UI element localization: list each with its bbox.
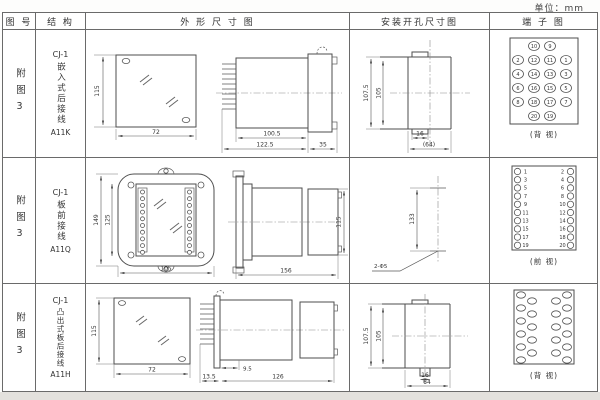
svg-text:105: 105 — [376, 87, 383, 99]
hole-note: 2-Φ5 — [374, 264, 388, 270]
header-install-dims: 安装开孔尺寸图 — [350, 13, 490, 30]
svg-text:16: 16 — [421, 372, 429, 379]
svg-text:5: 5 — [564, 86, 567, 92]
structure-row3: CJ-1 凸出式板后接线 A11H — [36, 284, 86, 391]
terminal-diagram-row1: 1092121114141336161558181772019 (背 视) — [490, 30, 597, 158]
install-drawing-row3-svg: 107.5 105 16 64 — [350, 284, 489, 390]
svg-text:3: 3 — [564, 72, 567, 78]
terminal-view-label-row1: (背 视) — [530, 129, 558, 139]
spec-table: 图 号 结 构 外 形 尺 寸 图 安装开孔尺寸图 端 子 图 附图3 CJ-1… — [2, 12, 598, 392]
svg-text:6: 6 — [561, 186, 564, 192]
svg-text:3: 3 — [524, 178, 527, 184]
svg-text:16: 16 — [416, 131, 424, 138]
mounting-hook — [216, 291, 224, 296]
svg-text:10: 10 — [559, 202, 565, 208]
svg-text:72: 72 — [152, 129, 160, 136]
structure-code-row1: A11K — [51, 128, 71, 137]
structure-code-row2: A11Q — [50, 245, 71, 254]
structure-model-row3: CJ-1 — [53, 296, 69, 305]
svg-text:17: 17 — [547, 100, 553, 106]
svg-text:149: 149 — [93, 214, 100, 226]
terminal-2-pins: 1234567891011121314151617181920 — [514, 168, 573, 249]
header-terminal: 端 子 图 — [490, 13, 597, 30]
svg-text:13.5: 13.5 — [202, 374, 216, 381]
svg-text:107.5: 107.5 — [363, 327, 370, 344]
svg-text:7: 7 — [524, 194, 527, 200]
svg-text:105: 105 — [376, 330, 383, 342]
svg-text:7: 7 — [564, 100, 567, 106]
structure-row1: CJ-1 嵌入式后接线 A11K — [36, 30, 86, 158]
svg-text:115: 115 — [336, 216, 343, 228]
outline-drawing-row1-svg: 115 72 100.5 122.5 35 — [86, 30, 349, 157]
svg-text:5: 5 — [524, 186, 527, 192]
svg-text:4: 4 — [516, 72, 519, 78]
svg-text:11: 11 — [522, 210, 528, 216]
svg-text:100.5: 100.5 — [263, 131, 280, 138]
mounting-hook — [317, 47, 327, 54]
svg-text:4: 4 — [561, 178, 564, 184]
svg-text:20: 20 — [559, 243, 565, 249]
rear-pins — [222, 64, 236, 109]
hatch-marks — [154, 199, 182, 233]
hatch-marks — [136, 316, 169, 345]
terminal-view-label-row2: (前 视) — [530, 256, 558, 266]
outline-diagram-row2: 149 125 105 115 156 — [86, 158, 350, 284]
terminal-diagram-row2: 1234567891011121314151617181920 (前 视) — [490, 158, 597, 284]
install-diagram-row2: 133 2-Φ5 — [350, 158, 490, 284]
terminal-drawing-row2-svg: 1234567891011121314151617181920 (前 视) — [490, 158, 596, 283]
figure-no-row2: 附图3 — [3, 158, 36, 284]
svg-text:(64): (64) — [423, 142, 435, 149]
svg-text:18: 18 — [559, 235, 565, 241]
structure-code-row3: A11H — [50, 370, 70, 379]
svg-text:14: 14 — [559, 219, 565, 225]
svg-text:1: 1 — [524, 169, 527, 175]
svg-text:14: 14 — [531, 72, 537, 78]
svg-text:6: 6 — [516, 86, 519, 92]
svg-text:35: 35 — [319, 142, 327, 149]
terminal-3-pins — [517, 292, 572, 363]
svg-text:15: 15 — [522, 227, 528, 233]
terminal-drawing-row1-svg: 1092121114141336161558181772019 (背 视) — [490, 30, 596, 157]
install-diagram-row1: 107.5 105 16 (64) — [350, 30, 490, 158]
svg-text:115: 115 — [91, 325, 98, 337]
svg-text:19: 19 — [522, 243, 528, 249]
terminal-diagram-row3: (背 视) — [490, 284, 597, 391]
svg-text:18: 18 — [531, 100, 537, 106]
svg-text:13: 13 — [522, 219, 528, 225]
structure-desc-row1: 嵌入式后接线 — [55, 62, 67, 125]
svg-text:72: 72 — [148, 367, 156, 374]
svg-text:19: 19 — [547, 114, 553, 120]
header-figure-no: 图 号 — [3, 13, 36, 30]
svg-text:9: 9 — [524, 202, 527, 208]
outline-drawing-row2-svg: 149 125 105 115 156 — [86, 158, 349, 283]
svg-text:156: 156 — [280, 268, 292, 275]
svg-text:15: 15 — [547, 86, 553, 92]
svg-text:12: 12 — [531, 58, 537, 64]
install-diagram-row3: 107.5 105 16 64 — [350, 284, 490, 391]
terminal-1-pins: 1092121114141336161558181772019 — [513, 42, 572, 121]
svg-text:9: 9 — [548, 44, 551, 50]
svg-text:20: 20 — [531, 114, 537, 120]
rear-pins — [200, 304, 214, 344]
svg-text:11: 11 — [547, 58, 553, 64]
install-drawing-row2-svg: 133 2-Φ5 — [350, 158, 489, 283]
svg-text:10: 10 — [531, 44, 537, 50]
svg-text:64: 64 — [423, 379, 431, 386]
outline-drawing-row3-svg: 115 72 9.5 13.5 126 — [86, 284, 349, 390]
structure-desc-row3: 凸出式板后接线 — [55, 308, 66, 368]
header-structure: 结 构 — [36, 13, 86, 30]
outline-diagram-row3: 115 72 9.5 13.5 126 — [86, 284, 350, 391]
structure-desc-row2: 板前接线 — [55, 200, 67, 242]
svg-text:126: 126 — [272, 374, 284, 381]
svg-text:107.5: 107.5 — [363, 84, 370, 101]
terminal-view-label-row3: (背 视) — [530, 370, 558, 380]
install-drawing-row1-svg: 107.5 105 16 (64) — [350, 30, 489, 157]
outline-2-strips — [141, 190, 192, 254]
terminal-drawing-row3-svg: (背 视) — [490, 284, 596, 390]
svg-text:12: 12 — [559, 210, 565, 216]
structure-model-row1: CJ-1 — [53, 50, 69, 59]
svg-text:9.5: 9.5 — [243, 367, 252, 373]
svg-text:8: 8 — [516, 100, 519, 106]
svg-text:105: 105 — [160, 266, 172, 273]
svg-text:16: 16 — [559, 227, 565, 233]
svg-text:133: 133 — [409, 213, 416, 225]
svg-text:2: 2 — [561, 169, 564, 175]
svg-text:8: 8 — [561, 194, 564, 200]
structure-model-row2: CJ-1 — [53, 188, 69, 197]
svg-text:17: 17 — [522, 235, 528, 241]
structure-row2: CJ-1 板前接线 A11Q — [36, 158, 86, 284]
svg-text:1: 1 — [564, 58, 567, 64]
page-edge-shade — [0, 392, 600, 400]
header-outline-dims: 外 形 尺 寸 图 — [86, 13, 350, 30]
svg-text:125: 125 — [105, 214, 112, 226]
outline-diagram-row1: 115 72 100.5 122.5 35 — [86, 30, 350, 158]
svg-text:122.5: 122.5 — [256, 142, 273, 149]
svg-text:2: 2 — [516, 58, 519, 64]
hatch-marks — [140, 75, 178, 107]
svg-text:13: 13 — [547, 72, 553, 78]
figure-no-row3: 附图3 — [3, 284, 36, 391]
figure-no-row1: 附图3 — [3, 30, 36, 158]
svg-text:16: 16 — [531, 86, 537, 92]
svg-text:115: 115 — [94, 85, 101, 97]
